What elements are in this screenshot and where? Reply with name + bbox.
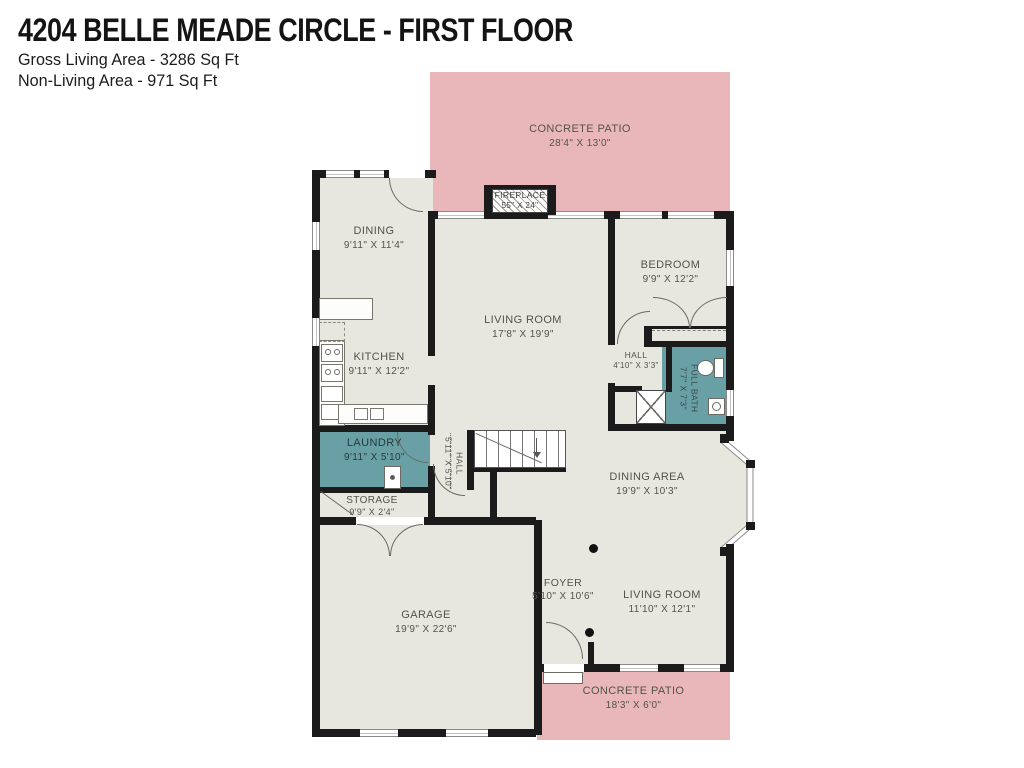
door-opening [389, 170, 425, 178]
wall [315, 487, 433, 493]
room-label-patio-bottom: CONCRETE PATIO 18'3" X 6'0" [537, 684, 730, 712]
closet-dashed-line [652, 330, 726, 331]
wall [312, 729, 536, 737]
window [726, 390, 734, 416]
page-title: 4204 BELLE MEADE CIRCLE - FIRST FLOOR [18, 12, 573, 49]
gross-living-area-text: Gross Living Area - 3286 Sq Ft [18, 50, 646, 70]
front-stoop [543, 672, 583, 684]
room-label-laundry: LAUNDRY 9'11" X 5'10" [319, 436, 430, 464]
room-label-foyer: FOYER 5'10" X 10'6" [524, 576, 602, 604]
staircase [474, 430, 566, 468]
room-label-dining: DINING 9'11" X 11'4" [315, 224, 433, 252]
stair-down-arrow-icon [533, 452, 541, 458]
kitchen-peninsula [319, 298, 373, 320]
wall [650, 341, 730, 347]
window [548, 211, 604, 219]
window [326, 170, 354, 178]
toilet-tank-icon [714, 358, 724, 378]
wall [490, 472, 497, 520]
title-block: 4204 BELLE MEADE CIRCLE - FIRST FLOOR Gr… [18, 12, 679, 91]
door-opening [544, 664, 584, 672]
window [360, 170, 384, 178]
stair-arrow-stem [536, 438, 537, 452]
room-label-storage: STORAGE 9'9" X 2'4" [322, 494, 422, 519]
toilet-bowl-icon [697, 360, 714, 376]
room-label-living-room: LIVING ROOM 17'8" X 19'9" [433, 313, 613, 341]
room-label-patio-top: CONCRETE PATIO 28'4" X 13'0" [430, 122, 730, 150]
window [360, 729, 398, 737]
room-label-hall: HALL 4'10" X 3'3" [608, 350, 664, 372]
room-label-kitchen: KITCHEN 9'11" X 12'2" [323, 350, 435, 378]
floor-plan-canvas: FIREPLACE 55" X 24" CONCRETE PATIO 28' [0, 0, 1024, 768]
sink-basin-icon [354, 408, 368, 420]
room-label-fireplace: FIREPLACE 55" X 24" [482, 191, 558, 210]
room-label-hall-stairs: HALL 5'11" X 5'10" [443, 434, 464, 492]
window [620, 211, 662, 219]
column-dot [585, 628, 594, 637]
wall [467, 430, 474, 490]
non-living-area-text: Non-Living Area - 971 Sq Ft [18, 71, 646, 91]
sink-basin-icon [370, 408, 384, 420]
wall [666, 341, 672, 392]
room-label-living-room-2: LIVING ROOM 11'10" X 12'1" [596, 588, 728, 616]
column-dot [589, 544, 598, 553]
window [446, 729, 488, 737]
bath-sink-bowl-icon [712, 402, 721, 411]
wall [612, 424, 730, 431]
window [684, 664, 720, 672]
kitchen-counter-dashed [319, 322, 345, 342]
room-label-bedroom: BEDROOM 9'9" X 12'2" [613, 258, 728, 286]
utility-dot-icon [390, 475, 395, 480]
wall [428, 385, 435, 435]
wall [588, 642, 594, 666]
room-label-full-bath: FULL BATH 7'7" X 7'3" [678, 352, 699, 424]
shower-icon [636, 390, 666, 424]
cabinet-icon [321, 386, 343, 402]
window [438, 211, 484, 219]
room-label-garage: GARAGE 19'9" X 22'6" [315, 608, 537, 636]
window [668, 211, 714, 219]
wall [315, 425, 433, 432]
window [620, 664, 658, 672]
room-label-dining-area: DINING AREA 19'9" X 10'3" [563, 470, 731, 498]
